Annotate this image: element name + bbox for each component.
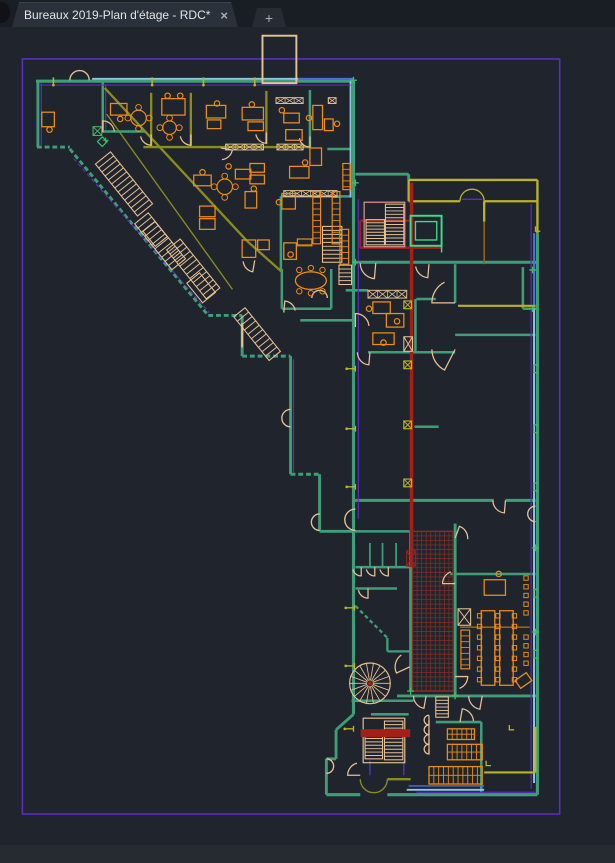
plus-icon: + — [265, 10, 273, 26]
canvas-footer-strip — [0, 845, 615, 863]
file-tab-bar: Bureaux 2019-Plan d'étage - RDC* × + — [0, 0, 615, 27]
floor-plan-svg[interactable] — [0, 27, 615, 845]
file-tab-active[interactable]: Bureaux 2019-Plan d'étage - RDC* × — [12, 2, 238, 27]
file-tab-label: Bureaux 2019-Plan d'étage - RDC* — [24, 8, 210, 22]
tab-close-icon[interactable]: × — [220, 8, 228, 23]
tab-overflow-stub — [0, 2, 10, 23]
new-tab-button[interactable]: + — [252, 8, 286, 27]
drawing-canvas[interactable] — [0, 27, 615, 845]
layer-floor-grid — [413, 531, 454, 691]
